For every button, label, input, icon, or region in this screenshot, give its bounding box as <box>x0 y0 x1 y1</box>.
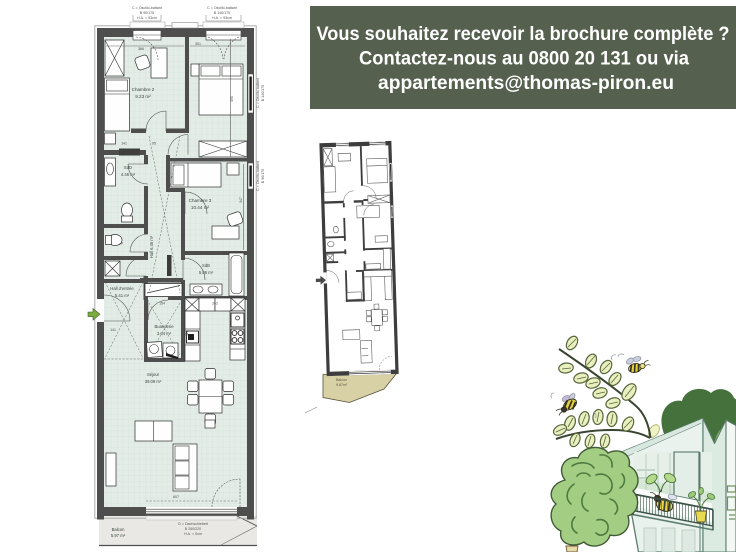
svg-text:4.46 m²: 4.46 m² <box>121 172 136 177</box>
svg-text:C = Oscillo-battant: C = Oscillo-battant <box>256 78 260 108</box>
svg-text:347: 347 <box>239 197 243 203</box>
svg-text:Chambre 2: Chambre 2 <box>132 87 155 92</box>
svg-text:95: 95 <box>152 142 156 146</box>
svg-text:H.A. = 93cm: H.A. = 93cm <box>137 16 157 20</box>
svg-text:Balcon: Balcon <box>112 527 125 532</box>
svg-text:141: 141 <box>110 328 116 332</box>
svg-text:D = Dachschiebett: D = Dachschiebett <box>178 522 207 526</box>
svg-text:Vous souhaitez recevoir la bro: Vous souhaitez recevoir la brochure comp… <box>317 24 730 45</box>
svg-text:490: 490 <box>230 96 234 102</box>
svg-text:SdB: SdB <box>202 263 210 268</box>
svg-text:B 140/175: B 140/175 <box>214 11 230 15</box>
svg-text:242: 242 <box>212 302 218 306</box>
svg-text:H.A. = 0cm: H.A. = 0cm <box>184 532 202 536</box>
svg-text:5.06 m²: 5.06 m² <box>199 270 214 275</box>
svg-text:3.64 m²: 3.64 m² <box>157 331 172 336</box>
svg-text:Buanderie: Buanderie <box>154 324 174 329</box>
svg-text:5.41 m²: 5.41 m² <box>115 293 130 298</box>
svg-text:H.A. = 93cm: H.A. = 93cm <box>212 16 232 20</box>
svg-text:Hall d'entrée: Hall d'entrée <box>110 286 134 291</box>
svg-text:118: 118 <box>185 330 189 336</box>
svg-text:5.97 m²: 5.97 m² <box>111 533 126 538</box>
svg-text:301: 301 <box>195 42 201 46</box>
svg-text:appartements@thomas-piron.eu: appartements@thomas-piron.eu <box>378 73 674 94</box>
svg-text:B 140/175: B 140/175 <box>261 85 265 101</box>
svg-text:C = Oscillo-battant: C = Oscillo-battant <box>256 161 260 191</box>
svg-text:Séjour: Séjour <box>147 372 160 377</box>
svg-text:141: 141 <box>121 142 127 146</box>
svg-text:Hall 6.46 m²: Hall 6.46 m² <box>149 235 154 258</box>
svg-text:9.87m²: 9.87m² <box>336 383 348 387</box>
svg-text:607: 607 <box>173 495 179 499</box>
svg-text:C = Oscillo-battant: C = Oscillo-battant <box>207 6 237 10</box>
svg-text:9.23 m²: 9.23 m² <box>135 94 151 99</box>
svg-text:366: 366 <box>138 47 144 51</box>
svg-text:C = Oscillo-battant: C = Oscillo-battant <box>132 6 162 10</box>
svg-text:Balcon: Balcon <box>336 378 347 382</box>
svg-text:154: 154 <box>159 302 165 306</box>
svg-text:B 90/175: B 90/175 <box>261 169 265 183</box>
svg-text:39.09 m²: 39.09 m² <box>145 379 162 384</box>
svg-text:Contactez-nous au 0800 20 131: Contactez-nous au 0800 20 131 ou via <box>359 49 689 70</box>
svg-text:B 260/220: B 260/220 <box>185 527 201 531</box>
svg-text:B 90/175: B 90/175 <box>140 11 154 15</box>
svg-text:Chambre 3: Chambre 3 <box>189 198 212 203</box>
